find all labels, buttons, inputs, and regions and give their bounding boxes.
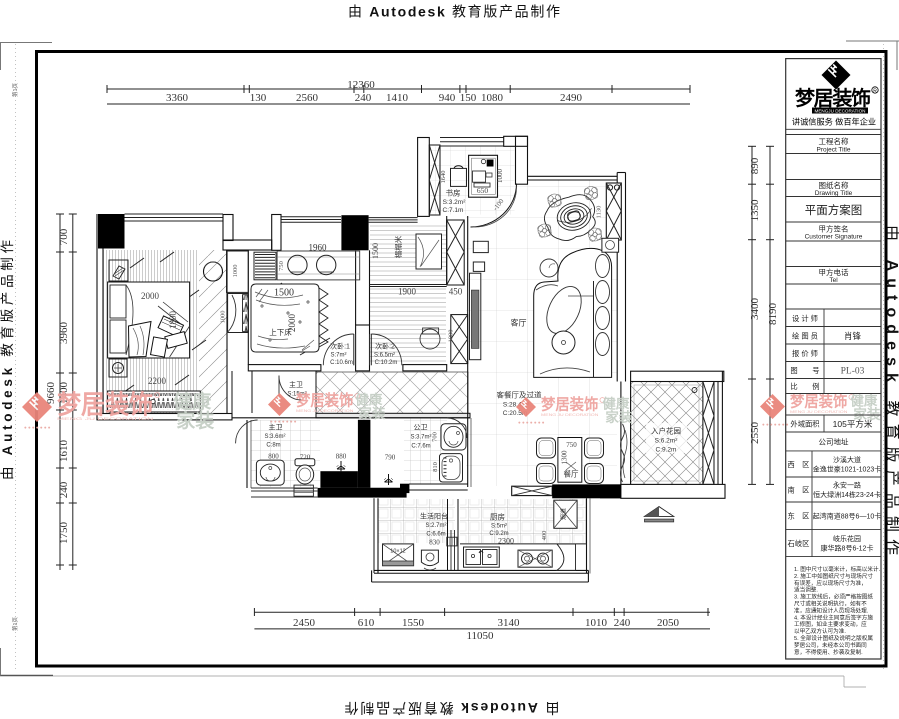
svg-text:1410: 1410 <box>386 92 409 104</box>
svg-text:Customer Signature: Customer Signature <box>805 234 863 241</box>
svg-text:C:6.6m: C:6.6m <box>426 532 445 538</box>
svg-text:S:6.2m²: S:6.2m² <box>655 438 679 445</box>
svg-text:2. 施工中如图纸尺寸与现场尺寸: 2. 施工中如图纸尺寸与现场尺寸 <box>794 572 873 580</box>
svg-text:永安一路: 永安一路 <box>833 481 861 490</box>
svg-text:880: 880 <box>336 453 347 461</box>
svg-text:主卫: 主卫 <box>289 380 303 389</box>
svg-text:S:3.2m²: S:3.2m² <box>443 199 467 206</box>
svg-text:S:6.5m²: S:6.5m² <box>374 353 395 359</box>
svg-text:940: 940 <box>439 92 456 104</box>
svg-text:750: 750 <box>278 261 285 271</box>
svg-text:公卫: 公卫 <box>414 423 428 431</box>
svg-text:甲方签名: 甲方签名 <box>819 224 849 234</box>
svg-text:1500: 1500 <box>371 243 380 259</box>
svg-text:岐乐花园: 岐乐花园 <box>833 534 861 543</box>
svg-text:第1页: 第1页 <box>11 616 19 631</box>
svg-text:外域面积: 外域面积 <box>790 420 819 429</box>
svg-text:恒大绿洲14栋23-24卡: 恒大绿洲14栋23-24卡 <box>813 490 881 499</box>
svg-text:1610: 1610 <box>58 440 70 463</box>
svg-text:S:5m²: S:5m² <box>491 524 507 530</box>
svg-text:上下床: 上下床 <box>269 327 292 337</box>
svg-text:以甲乙双方认可为准.: 以甲乙双方认可为准. <box>794 627 846 635</box>
svg-text:书房: 书房 <box>446 188 461 198</box>
svg-text:11050: 11050 <box>466 630 494 642</box>
svg-text:1500: 1500 <box>274 288 294 299</box>
svg-text:西 区: 西 区 <box>788 460 810 469</box>
svg-text:1000: 1000 <box>448 330 455 343</box>
svg-text:健康: 健康 <box>173 390 212 413</box>
svg-text:10×12: 10×12 <box>390 549 405 555</box>
svg-text:梦居装饰: 梦居装饰 <box>795 86 871 110</box>
svg-text:S:3.7m²: S:3.7m² <box>410 435 431 441</box>
svg-text:家装: 家装 <box>605 409 633 425</box>
svg-text:Drawing Title: Drawing Title <box>815 190 853 197</box>
svg-text:工修图，如业主要求变动，应: 工修图，如业主要求变动，应 <box>794 620 867 628</box>
svg-text:生活阳台: 生活阳台 <box>420 512 448 521</box>
svg-text:MENGJU DECORATION: MENGJU DECORATION <box>815 109 866 114</box>
svg-text:1. 图中尺寸以毫米计，标高以米计.: 1. 图中尺寸以毫米计，标高以米计. <box>794 565 881 573</box>
svg-text:MENG JU DECORATION: MENG JU DECORATION <box>57 416 153 421</box>
svg-text:450: 450 <box>449 287 463 297</box>
svg-text:2450: 2450 <box>293 617 316 629</box>
svg-text:C:8m: C:8m <box>266 443 280 449</box>
svg-text:C:10.2m: C:10.2m <box>375 360 398 366</box>
svg-text:1130: 1130 <box>596 206 603 219</box>
svg-text:150: 150 <box>460 92 477 104</box>
svg-text:240: 240 <box>614 617 631 629</box>
svg-text:讲诚信服务 做百年企业: 讲诚信服务 做百年企业 <box>792 117 876 127</box>
svg-text:1640: 1640 <box>440 171 447 184</box>
svg-text:梦居装饰: 梦居装饰 <box>296 391 353 410</box>
svg-text:Project Title: Project Title <box>817 147 851 154</box>
svg-text:700: 700 <box>58 228 70 245</box>
svg-text:● ● ● ● ● ● ●: ● ● ● ● ● ● ● <box>518 420 545 425</box>
svg-text:适当调整.: 适当调整. <box>794 586 818 594</box>
svg-text:C:7.1m: C:7.1m <box>443 207 464 214</box>
svg-text:榻榻米: 榻榻米 <box>393 235 403 258</box>
svg-text:1800: 1800 <box>168 311 178 330</box>
svg-text:起湾南道88号6—10卡: 起湾南道88号6—10卡 <box>813 512 881 521</box>
svg-text:2000: 2000 <box>141 291 160 301</box>
svg-text:MENG JU DECORATION: MENG JU DECORATION <box>296 408 353 413</box>
svg-text:东 区: 东 区 <box>788 512 810 521</box>
svg-text:客厅: 客厅 <box>511 318 527 328</box>
svg-text:3400: 3400 <box>749 298 761 321</box>
svg-text:830: 830 <box>429 539 440 547</box>
svg-text:4. 本设计经业主同意后签字方施: 4. 本设计经业主同意后签字方施 <box>794 613 873 621</box>
svg-text:105平方米: 105平方米 <box>833 419 873 429</box>
svg-text:MENG JU DECORATION: MENG JU DECORATION <box>790 409 847 414</box>
svg-text:梦居公司，未经本公司书面同: 梦居公司，未经本公司书面同 <box>794 641 867 649</box>
svg-text:610: 610 <box>358 617 375 629</box>
svg-text:1350: 1350 <box>749 199 761 222</box>
svg-text:C:7.6m: C:7.6m <box>411 444 430 450</box>
svg-text:家装: 家装 <box>176 409 214 432</box>
svg-text:130: 130 <box>250 92 267 104</box>
svg-text:9660: 9660 <box>45 382 57 405</box>
svg-text:家装: 家装 <box>358 405 385 421</box>
svg-text:890: 890 <box>749 157 761 174</box>
svg-text:800: 800 <box>268 453 279 461</box>
svg-text:750: 750 <box>566 441 577 449</box>
svg-text:400: 400 <box>541 531 548 541</box>
svg-text:Tel: Tel <box>829 277 838 284</box>
svg-text:次卧:2: 次卧:2 <box>375 342 395 351</box>
svg-text:PL-03: PL-03 <box>841 367 865 377</box>
svg-text:图纸名称: 图纸名称 <box>819 180 849 190</box>
svg-text:石岐区: 石岐区 <box>788 539 810 548</box>
svg-text:2490: 2490 <box>560 92 583 104</box>
svg-text:S:3.6m²: S:3.6m² <box>264 434 285 440</box>
svg-text:3140: 3140 <box>498 617 521 629</box>
svg-text:餐厅: 餐厅 <box>564 470 579 479</box>
svg-text:3960: 3960 <box>58 322 70 345</box>
svg-text:790: 790 <box>385 454 396 462</box>
svg-text:2050: 2050 <box>657 617 680 629</box>
svg-text:● ● ● ● ● ● ●: ● ● ● ● ● ● ● <box>270 419 297 424</box>
svg-text:1000: 1000 <box>232 265 239 278</box>
svg-text:报 价 师: 报 价 师 <box>792 349 818 358</box>
svg-text:1010: 1010 <box>585 617 608 629</box>
svg-text:2550: 2550 <box>749 422 761 445</box>
svg-text:12360: 12360 <box>347 79 375 91</box>
svg-text:C:10.6m: C:10.6m <box>330 360 353 366</box>
svg-text:公司地址: 公司地址 <box>819 437 849 447</box>
svg-text:1550: 1550 <box>402 617 425 629</box>
svg-text:1900: 1900 <box>398 287 417 297</box>
svg-text:康华路8号6-12卡: 康华路8号6-12卡 <box>821 544 874 553</box>
svg-text:810: 810 <box>432 462 439 472</box>
svg-text:梦居装饰: 梦居装饰 <box>541 395 598 414</box>
svg-text:R: R <box>873 89 877 95</box>
svg-text:240: 240 <box>355 92 372 104</box>
svg-text:MENG JU DECORATION: MENG JU DECORATION <box>541 412 598 417</box>
svg-text:尺寸或相关说明执行，如有不: 尺寸或相关说明执行，如有不 <box>794 600 867 608</box>
svg-text:准，应通知设计人员现场处理.: 准，应通知设计人员现场处理. <box>794 606 869 614</box>
svg-text:650: 650 <box>477 186 489 195</box>
svg-text:平面方案图: 平面方案图 <box>805 203 863 217</box>
svg-text:金逸世豪1021-1023卡: 金逸世豪1021-1023卡 <box>813 464 881 473</box>
svg-text:甲方电话: 甲方电话 <box>819 267 849 277</box>
svg-text:肖锋: 肖锋 <box>844 331 862 341</box>
svg-text:● ● ● ● ● ● ●: ● ● ● ● ● ● ● <box>24 425 51 430</box>
svg-text:绘 图 员: 绘 图 员 <box>792 331 818 340</box>
svg-text:8190: 8190 <box>767 303 779 326</box>
svg-text:2200: 2200 <box>148 376 167 386</box>
svg-text:南 区: 南 区 <box>788 485 810 494</box>
svg-text:图 号: 图 号 <box>790 366 819 375</box>
svg-text:S:2.7m²: S:2.7m² <box>425 523 446 529</box>
svg-text:3. 施工放线后，必须严格按图纸: 3. 施工放线后，必须严格按图纸 <box>794 593 873 601</box>
svg-text:S:7m²: S:7m² <box>330 353 346 359</box>
svg-text:设 计 师: 设 计 师 <box>792 314 818 323</box>
svg-text:1750: 1750 <box>58 522 70 545</box>
svg-text:700: 700 <box>432 432 439 442</box>
svg-text:1300: 1300 <box>561 450 569 465</box>
svg-text:沙溪大道: 沙溪大道 <box>833 455 861 464</box>
svg-text:烟道: 烟道 <box>560 508 568 520</box>
svg-text:1000: 1000 <box>220 311 227 324</box>
svg-text:240: 240 <box>58 481 70 498</box>
svg-text:1080: 1080 <box>481 92 504 104</box>
svg-text:有误差，应以现场尺寸为准，: 有误差，应以现场尺寸为准， <box>794 579 867 587</box>
svg-text:1000: 1000 <box>496 169 504 184</box>
svg-text:次卧:1: 次卧:1 <box>330 342 350 351</box>
svg-text:客餐厅及过道: 客餐厅及过道 <box>497 390 542 400</box>
svg-text:厨房: 厨房 <box>490 512 505 522</box>
svg-text:梦居装饰: 梦居装饰 <box>790 392 847 411</box>
svg-text:比 例: 比 例 <box>790 382 819 391</box>
svg-text:第1页: 第1页 <box>11 82 19 97</box>
svg-text:5. 全部设计图纸及说明之版权属: 5. 全部设计图纸及说明之版权属 <box>794 634 873 642</box>
svg-text:C:9.2m: C:9.2m <box>656 447 677 454</box>
svg-text:2560: 2560 <box>296 92 319 104</box>
svg-text:3360: 3360 <box>166 92 189 104</box>
svg-text:● ● ● ● ● ● ●: ● ● ● ● ● ● ● <box>762 422 789 427</box>
svg-text:意，不得使用、抄袭及复制.: 意，不得使用、抄袭及复制. <box>794 648 863 656</box>
svg-text:入户花园: 入户花园 <box>651 426 681 436</box>
svg-text:工程名称: 工程名称 <box>819 136 849 146</box>
svg-text:梦居装饰: 梦居装饰 <box>57 389 153 419</box>
